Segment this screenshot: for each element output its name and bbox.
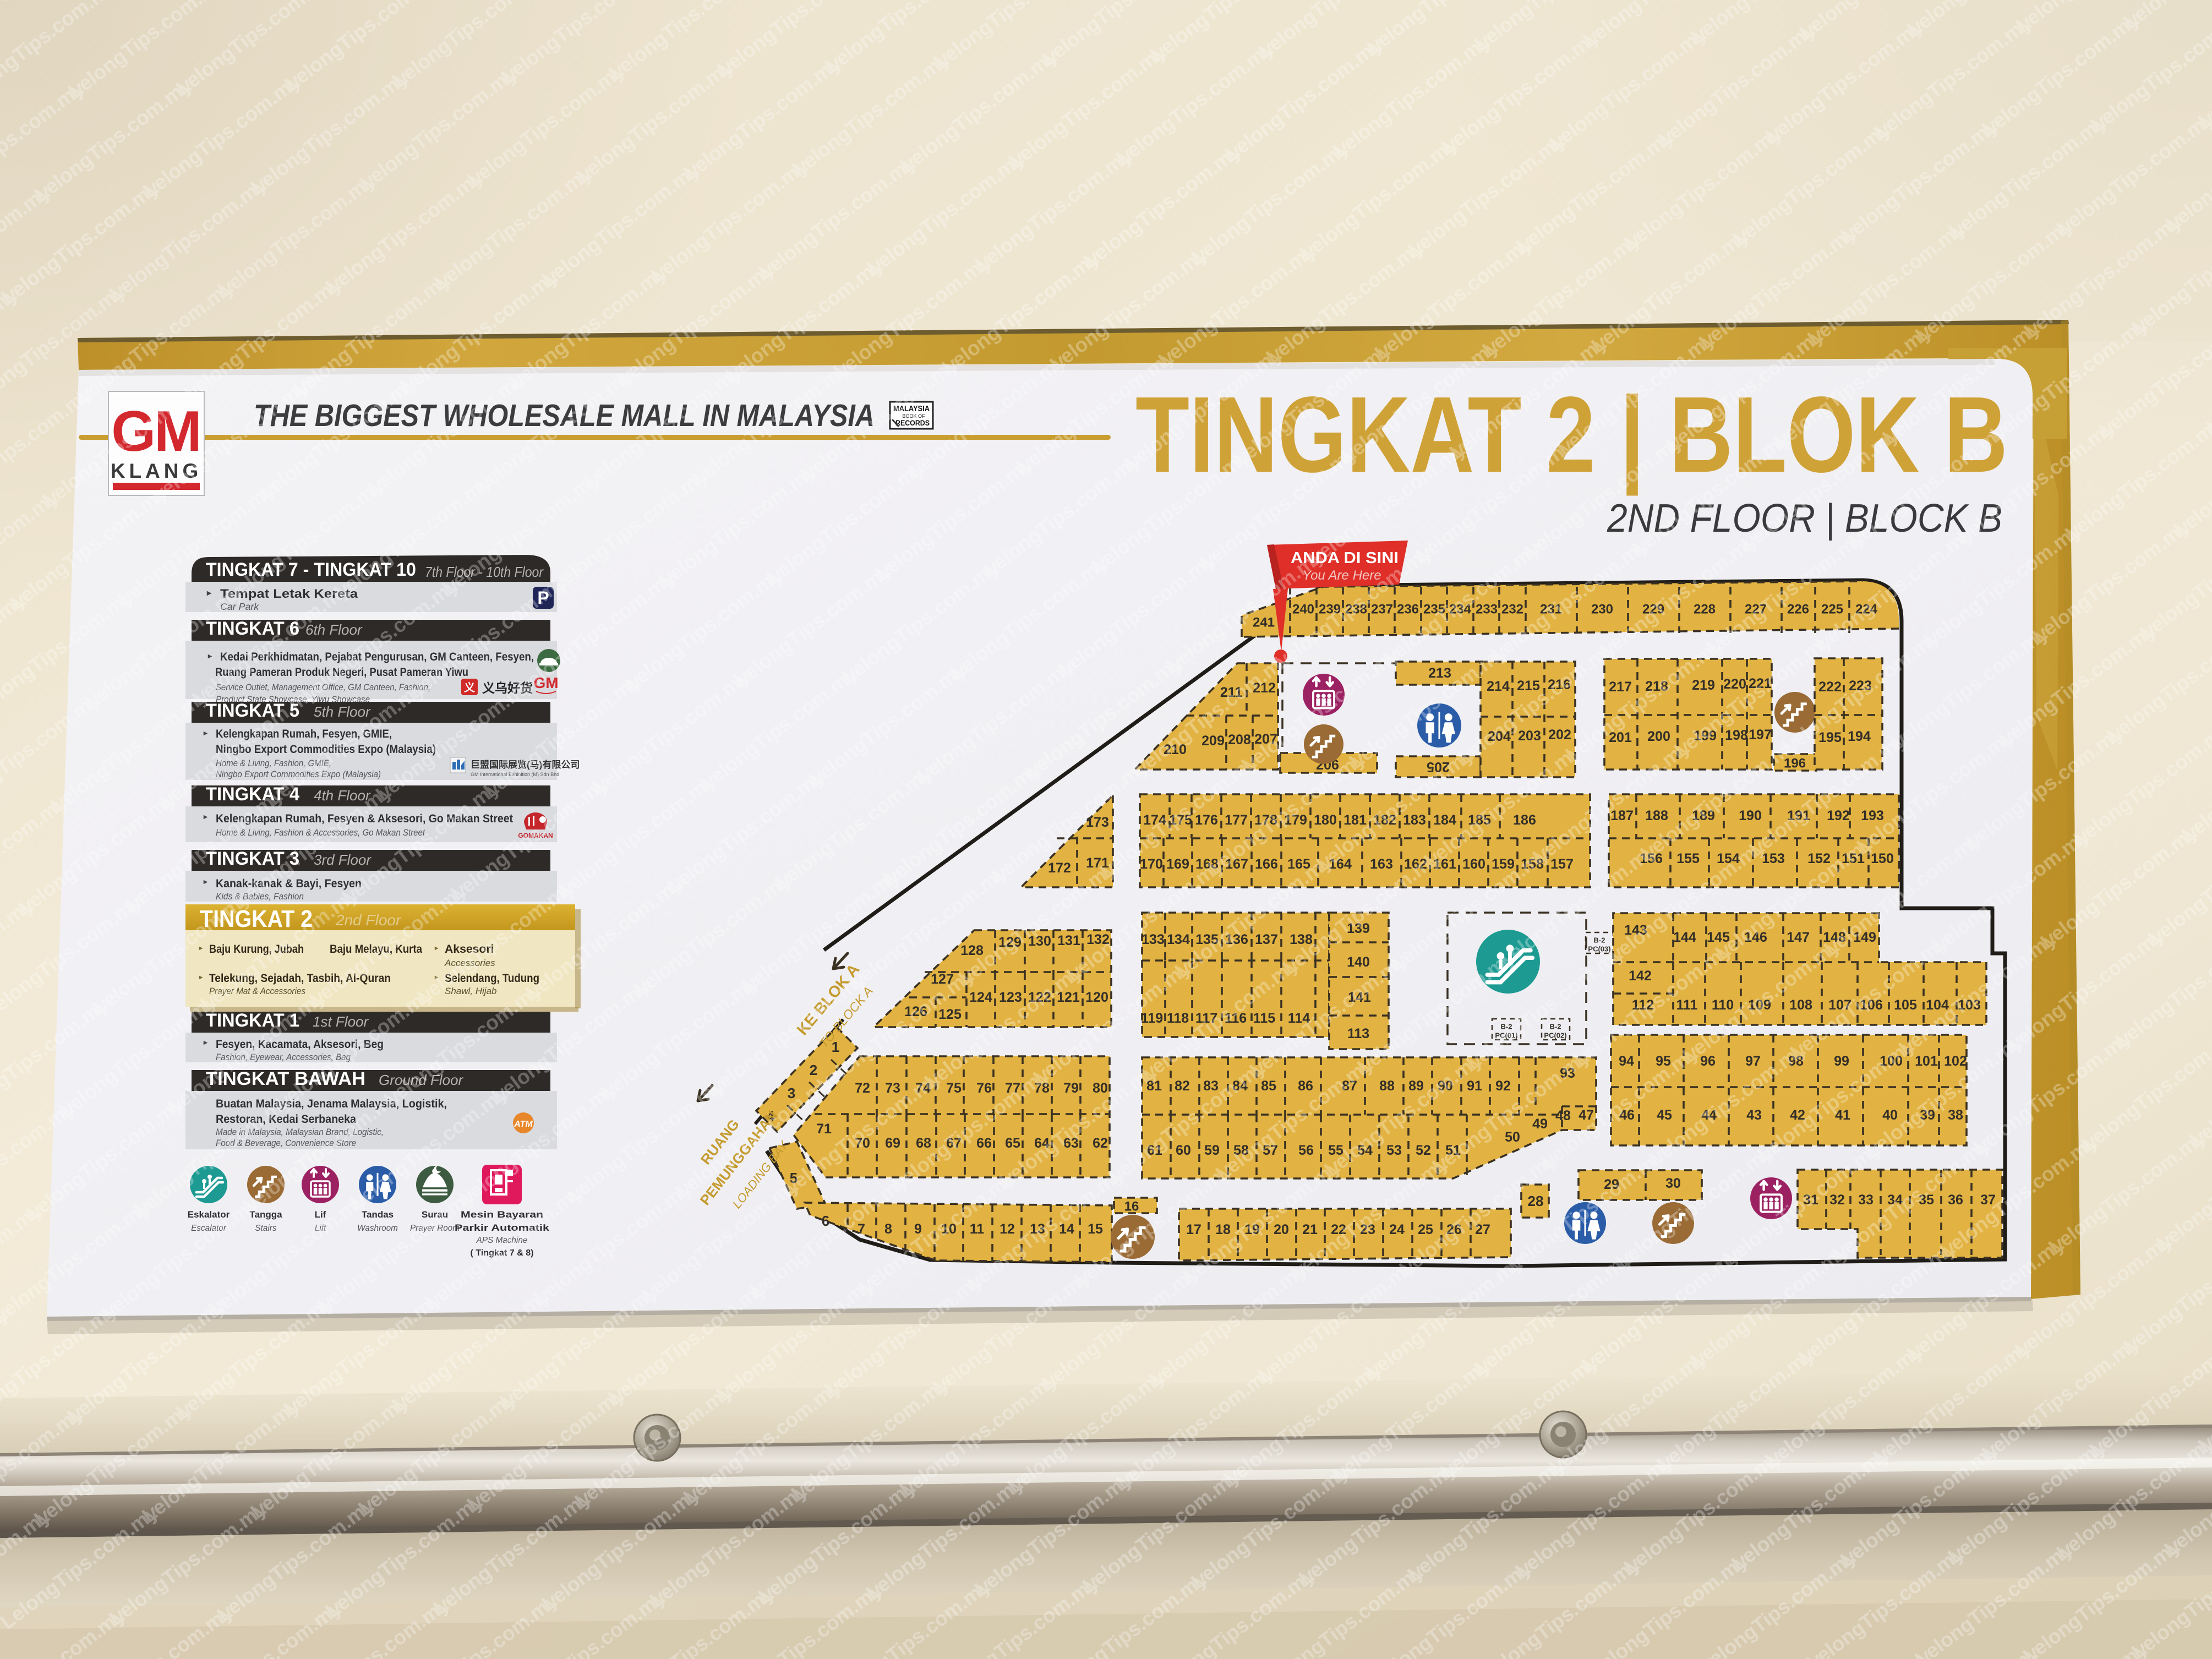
svg-text:197: 197 <box>1749 727 1772 743</box>
svg-text:102: 102 <box>1944 1054 1967 1069</box>
svg-text:30: 30 <box>1665 1176 1681 1191</box>
svg-text:134: 134 <box>1167 932 1190 947</box>
svg-text:150: 150 <box>1871 851 1894 866</box>
svg-text:RECORDS: RECORDS <box>895 418 930 427</box>
svg-text:16: 16 <box>1124 1199 1139 1214</box>
svg-text:111: 111 <box>1676 997 1698 1013</box>
svg-text:202: 202 <box>1548 727 1571 743</box>
svg-text:72: 72 <box>855 1080 870 1096</box>
svg-text:169: 169 <box>1166 856 1189 872</box>
svg-text:59: 59 <box>1204 1143 1220 1158</box>
svg-text:125: 125 <box>938 1007 962 1022</box>
svg-text:226: 226 <box>1787 602 1809 617</box>
svg-text:228: 228 <box>1694 602 1716 617</box>
svg-text:91: 91 <box>1467 1078 1482 1094</box>
svg-text:60: 60 <box>1176 1143 1191 1158</box>
svg-text:203: 203 <box>1518 728 1541 744</box>
svg-text:79: 79 <box>1063 1080 1079 1096</box>
svg-text:124: 124 <box>969 990 992 1005</box>
svg-text:184: 184 <box>1433 812 1456 828</box>
svg-text:92: 92 <box>1495 1078 1511 1094</box>
svg-text:105: 105 <box>1894 997 1917 1013</box>
svg-text:Stairs: Stairs <box>255 1224 276 1233</box>
svg-text:49: 49 <box>1532 1116 1548 1132</box>
svg-text:50: 50 <box>1505 1129 1520 1145</box>
svg-text:24: 24 <box>1389 1222 1405 1237</box>
svg-text:209: 209 <box>1201 733 1225 749</box>
svg-text:PC(02): PC(02) <box>1544 1032 1566 1040</box>
svg-text:118: 118 <box>1167 1011 1189 1026</box>
svg-text:241: 241 <box>1253 615 1275 630</box>
svg-text:99: 99 <box>1834 1054 1849 1069</box>
svg-text:133: 133 <box>1141 932 1165 947</box>
svg-text:188: 188 <box>1645 808 1668 823</box>
svg-text:85: 85 <box>1261 1078 1276 1094</box>
svg-text:21: 21 <box>1302 1222 1318 1237</box>
svg-text:217: 217 <box>1609 679 1632 695</box>
svg-text:232: 232 <box>1501 602 1523 617</box>
svg-text:219: 219 <box>1692 678 1715 693</box>
svg-text:225: 225 <box>1821 602 1843 617</box>
svg-text:115: 115 <box>1253 1011 1275 1026</box>
svg-text:214: 214 <box>1487 679 1510 694</box>
svg-text:52: 52 <box>1416 1143 1431 1158</box>
svg-text:88: 88 <box>1379 1078 1395 1094</box>
svg-text:▸: ▸ <box>203 877 208 886</box>
svg-text:28: 28 <box>1528 1193 1544 1209</box>
svg-text:82: 82 <box>1175 1078 1190 1094</box>
svg-text:62: 62 <box>1093 1136 1108 1151</box>
svg-text:119: 119 <box>1141 1011 1163 1026</box>
svg-text:45: 45 <box>1657 1107 1672 1123</box>
svg-text:86: 86 <box>1298 1078 1313 1094</box>
svg-text:198: 198 <box>1725 728 1748 743</box>
svg-text:147: 147 <box>1787 930 1810 945</box>
svg-text:186: 186 <box>1513 812 1536 828</box>
svg-text:236: 236 <box>1397 602 1419 617</box>
svg-text:120: 120 <box>1085 990 1108 1005</box>
svg-text:71: 71 <box>816 1121 832 1137</box>
svg-text:200: 200 <box>1647 729 1670 744</box>
svg-text:B-2: B-2 <box>1594 936 1605 945</box>
svg-text:155: 155 <box>1676 851 1700 866</box>
svg-text:▸: ▸ <box>203 812 208 821</box>
svg-text:66: 66 <box>976 1136 992 1151</box>
svg-text:▸: ▸ <box>203 729 208 737</box>
svg-text:160: 160 <box>1462 856 1485 872</box>
svg-text:172: 172 <box>1048 860 1071 876</box>
svg-text:180: 180 <box>1314 812 1337 828</box>
svg-text:33: 33 <box>1858 1192 1874 1208</box>
svg-text:▸: ▸ <box>434 944 439 952</box>
svg-text:▸: ▸ <box>203 1038 208 1046</box>
svg-text:B-2: B-2 <box>1550 1023 1561 1031</box>
svg-text:94: 94 <box>1619 1054 1634 1069</box>
svg-text:76: 76 <box>976 1080 992 1096</box>
svg-text:3rd Floor: 3rd Floor <box>314 852 372 868</box>
svg-text:12: 12 <box>1000 1221 1015 1237</box>
svg-text:192: 192 <box>1827 808 1850 823</box>
svg-text:222: 222 <box>1818 679 1842 695</box>
svg-text:65: 65 <box>1005 1136 1020 1151</box>
svg-text:101: 101 <box>1915 1054 1938 1069</box>
svg-text:183: 183 <box>1403 812 1426 828</box>
svg-text:▸: ▸ <box>207 652 212 660</box>
svg-text:56: 56 <box>1298 1143 1314 1158</box>
svg-text:140: 140 <box>1347 954 1370 970</box>
svg-text:17: 17 <box>1186 1222 1201 1237</box>
svg-text:190: 190 <box>1739 808 1762 823</box>
svg-text:Tandas: Tandas <box>362 1209 394 1220</box>
svg-text:Washroom: Washroom <box>357 1224 398 1233</box>
svg-text:177: 177 <box>1225 812 1248 828</box>
svg-text:113: 113 <box>1347 1026 1369 1041</box>
svg-text:义: 义 <box>464 681 475 694</box>
svg-text:208: 208 <box>1228 732 1251 747</box>
svg-text:137: 137 <box>1255 932 1278 947</box>
svg-text:240: 240 <box>1292 602 1314 617</box>
svg-text:36: 36 <box>1948 1192 1963 1208</box>
svg-text:131: 131 <box>1057 933 1080 948</box>
svg-text:48: 48 <box>1555 1108 1571 1123</box>
svg-text:170: 170 <box>1140 856 1163 872</box>
svg-text:69: 69 <box>885 1136 900 1151</box>
svg-text:38: 38 <box>1948 1107 1963 1123</box>
svg-text:Buatan Malaysia, Jenama Malays: Buatan Malaysia, Jenama Malaysia, Logist… <box>216 1098 447 1110</box>
svg-text:108: 108 <box>1789 997 1812 1013</box>
svg-text:▸: ▸ <box>199 973 203 981</box>
svg-text:1st Floor: 1st Floor <box>313 1013 369 1030</box>
svg-text:166: 166 <box>1255 856 1278 872</box>
svg-text:ATM: ATM <box>514 1120 533 1129</box>
svg-text:2nd Floor: 2nd Floor <box>335 912 402 929</box>
svg-text:194: 194 <box>1848 729 1871 744</box>
svg-text:163: 163 <box>1370 856 1393 872</box>
svg-text:11: 11 <box>970 1221 985 1237</box>
svg-text:8: 8 <box>884 1221 892 1237</box>
svg-text:142: 142 <box>1629 968 1652 984</box>
svg-text:53: 53 <box>1386 1143 1402 1158</box>
svg-text:75: 75 <box>946 1080 962 1096</box>
svg-text:230: 230 <box>1591 602 1613 617</box>
svg-text:15: 15 <box>1088 1221 1103 1237</box>
svg-text:144: 144 <box>1673 930 1696 945</box>
svg-text:43: 43 <box>1746 1107 1762 1123</box>
